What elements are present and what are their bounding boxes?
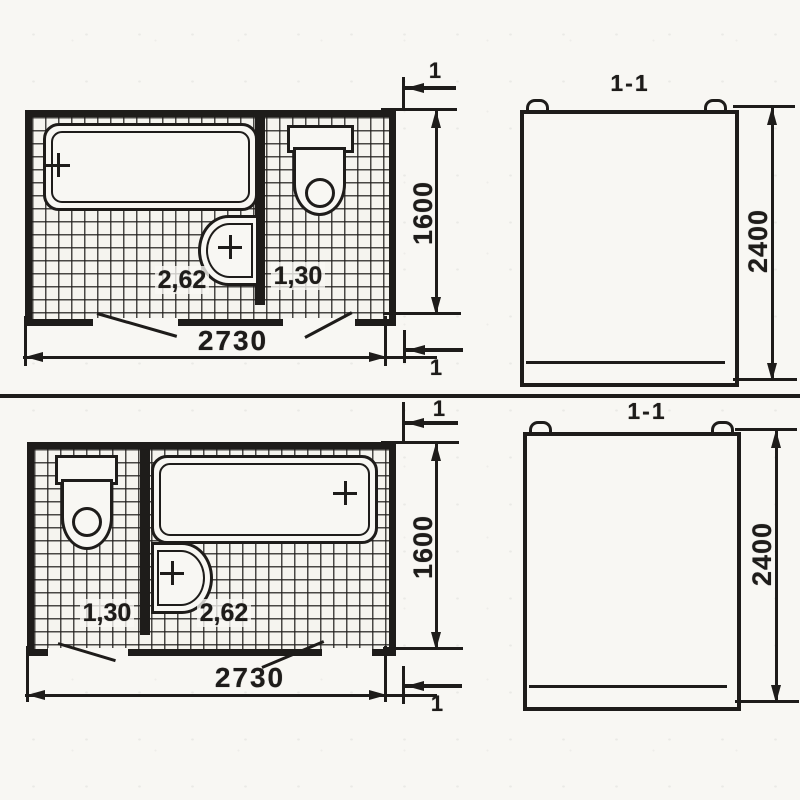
drawing-sheet: 2,62 1,30 2730 1600 1 1 1-1	[0, 0, 800, 800]
dimension-arrow	[369, 690, 387, 700]
dimension-arrow	[431, 443, 441, 461]
section-cut-arrow	[406, 418, 424, 428]
extension-line	[381, 441, 459, 444]
section-cut-number: 1	[426, 693, 448, 715]
floor-plan: 1,30 2,62	[27, 442, 396, 656]
dimension-arrow	[27, 690, 45, 700]
section-cut-number: 1	[428, 398, 450, 420]
room-area-label: 2,62	[184, 600, 264, 626]
area-bathroom-value: 2,62	[197, 599, 252, 627]
extension-line	[735, 428, 797, 431]
height-dimension: 2400	[748, 499, 776, 609]
extension-line	[735, 700, 799, 703]
dimension-arrow	[771, 430, 781, 448]
extension-line	[383, 647, 463, 650]
section-cut-arrow	[406, 681, 424, 691]
door-opening	[322, 648, 372, 657]
room-area-label: 1,30	[67, 600, 147, 626]
variant-bottom: 1,30 2,62 2730 1600 1 1 1-1	[0, 0, 800, 800]
width-dimension: 2730	[188, 664, 312, 692]
area-wc-value: 1,30	[80, 599, 135, 627]
faucet-cross-icon	[160, 561, 184, 585]
section-view	[523, 432, 741, 711]
dimension-arrow	[431, 632, 441, 650]
depth-dimension: 1600	[409, 492, 437, 602]
dimension-arrow	[771, 685, 781, 703]
toilet-drain	[72, 507, 102, 537]
faucet-cross-icon	[333, 481, 357, 505]
floor-slab-line	[529, 685, 727, 688]
section-title: 1-1	[597, 400, 697, 423]
